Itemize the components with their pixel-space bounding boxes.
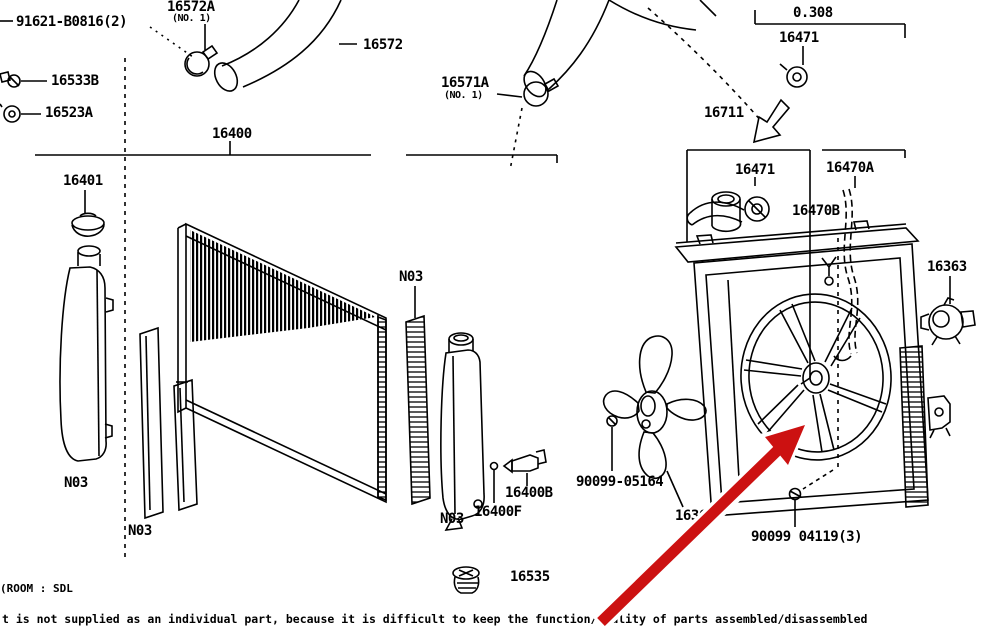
part-label-16572a: 16572A <box>167 0 215 14</box>
part-label-90099-05164: 90099-05164 <box>576 475 663 489</box>
part-label-16400b: 16400B <box>505 486 553 500</box>
part-label-16572a-note: (NO. 1) <box>172 14 211 24</box>
part-label-16470b: 16470B <box>792 204 840 218</box>
parts-diagram: 91621-B0816(2)16572A(NO. 1)1657216533B16… <box>0 0 1000 630</box>
part-label-16533b: 16533B <box>51 74 99 88</box>
part-label-16363: 16363 <box>927 260 967 274</box>
part-label-n03-left-seal: N03 <box>128 524 152 538</box>
footer-disclaimer-note: t is not supplied as an individual part,… <box>2 612 867 626</box>
part-label-16361: 16361 <box>675 509 715 523</box>
part-label-16711: 16711 <box>704 106 744 120</box>
part-label-90099-04119: 90099 04119(3) <box>751 530 862 544</box>
part-label-16572: 16572 <box>363 38 403 52</box>
part-label-16571a-note: (NO. 1) <box>444 91 483 101</box>
part-label-16471-upper: 16471 <box>779 31 819 45</box>
part-label-n03-right-seal: N03 <box>399 270 423 284</box>
part-label-16400: 16400 <box>212 127 252 141</box>
part-label-16535: 16535 <box>510 570 550 584</box>
part-label-16470a: 16470A <box>826 161 874 175</box>
part-label-n03-right-tank: N03 <box>440 512 464 526</box>
part-label-16571a: 16571A <box>441 76 489 90</box>
part-label-91621-b0816: 91621-B0816(2) <box>16 15 127 29</box>
part-label-16523a: 16523A <box>45 106 93 120</box>
part-label-dim-0308: 0.308 <box>793 6 833 20</box>
part-labels-layer: 91621-B0816(2)16572A(NO. 1)1657216533B16… <box>0 0 1000 630</box>
part-label-n03-left-tank: N03 <box>64 476 88 490</box>
part-label-16471-lower: 16471 <box>735 163 775 177</box>
part-label-16400f: 16400F <box>474 505 522 519</box>
part-label-16401: 16401 <box>63 174 103 188</box>
footer-left-note: (ROOM : SDL <box>0 582 73 595</box>
